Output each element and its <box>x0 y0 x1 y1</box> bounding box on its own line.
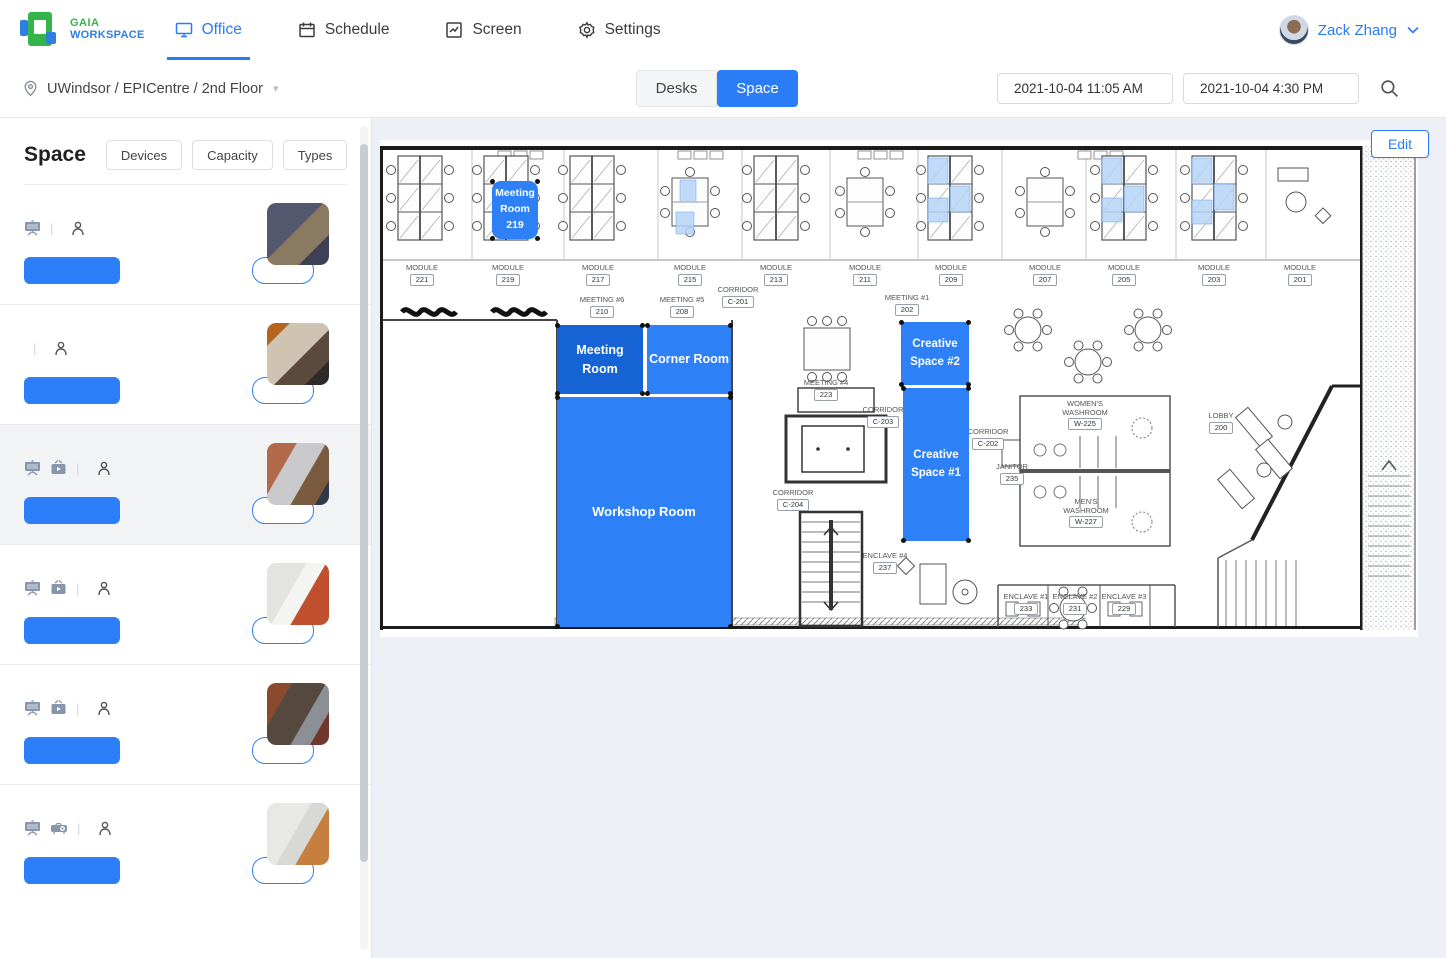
brand-logo: GAIA WORKSPACE <box>0 10 171 50</box>
space-toggle-button[interactable]: Space <box>717 70 798 107</box>
breadcrumb-chevron-icon: ▾ <box>273 82 279 95</box>
gear-icon <box>578 21 596 39</box>
person-icon <box>97 581 111 596</box>
tv-device-icon <box>50 460 67 476</box>
projector-device-icon <box>50 820 68 836</box>
tab-office[interactable]: Office <box>171 0 246 60</box>
main-nav: Office Schedule Screen Settings <box>171 0 713 60</box>
floorplan-canvas[interactable]: MeetingRoom219Meeting RoomCorner RoomWor… <box>380 140 1418 637</box>
breadcrumb[interactable]: UWindsor / EPICentre / 2nd Floor ▾ <box>0 80 279 97</box>
calendar-icon <box>298 21 316 39</box>
start-time-input[interactable]: 2021-10-04 11:05 AM <box>997 73 1173 104</box>
room-card-creative-space-2[interactable]: | <box>0 304 371 424</box>
person-icon <box>98 821 112 836</box>
person-icon <box>71 221 85 236</box>
room-photo <box>267 323 329 385</box>
tab-screen[interactable]: Screen <box>441 0 525 60</box>
screen-device-icon <box>24 460 41 476</box>
person-icon <box>97 581 111 596</box>
desks-toggle-button[interactable]: Desks <box>636 70 717 107</box>
filter-types-button[interactable]: Types <box>283 140 348 170</box>
tab-settings[interactable]: Settings <box>574 0 665 60</box>
time-slot-badge[interactable] <box>24 257 120 284</box>
person-icon <box>97 461 111 476</box>
screen-device-icon <box>24 700 41 716</box>
room-card-meeting-room[interactable]: | <box>0 424 371 544</box>
screen-device-icon <box>24 820 41 836</box>
room-card-workshop-room[interactable]: | <box>0 784 371 904</box>
edit-button[interactable]: Edit <box>1371 130 1429 158</box>
room-overlay-corner-room[interactable]: Corner Room <box>647 325 731 394</box>
room-card-meeting-room-219[interactable]: | <box>0 185 371 304</box>
screen-device-icon <box>24 820 41 836</box>
room-card-creative-space-1[interactable]: | <box>0 664 371 784</box>
person-icon <box>71 221 85 236</box>
end-time-input[interactable]: 2021-10-04 4:30 PM <box>1183 73 1359 104</box>
time-slot-badge[interactable] <box>24 497 120 524</box>
search-button[interactable] <box>1379 78 1400 99</box>
view-toggle: Desks Space <box>636 70 798 107</box>
person-icon <box>97 701 111 716</box>
person-icon <box>54 341 68 356</box>
person-icon <box>54 341 68 356</box>
room-photo <box>267 803 329 865</box>
user-menu[interactable]: Zack Zhang <box>1279 15 1446 45</box>
sidebar-title: Space <box>24 143 86 167</box>
tab-schedule[interactable]: Schedule <box>294 0 394 60</box>
room-photo <box>267 203 329 265</box>
tv-device-icon <box>50 700 67 716</box>
time-slot-badge[interactable] <box>24 377 120 404</box>
monitor-icon <box>175 21 193 39</box>
time-slot-badge[interactable] <box>24 617 120 644</box>
tv-device-icon <box>50 580 67 596</box>
room-overlay-meeting-room-219[interactable]: MeetingRoom219 <box>492 181 538 239</box>
projector-device-icon <box>50 820 68 836</box>
room-photo <box>267 683 329 745</box>
breadcrumb-text: UWindsor / EPICentre / 2nd Floor <box>47 81 263 97</box>
tv-device-icon <box>50 460 67 476</box>
time-slot-badge[interactable] <box>24 857 120 884</box>
tv-device-icon <box>50 700 67 716</box>
floorplan-area: MeetingRoom219Meeting RoomCorner RoomWor… <box>372 118 1446 958</box>
filter-devices-button[interactable]: Devices <box>106 140 182 170</box>
screen-device-icon <box>24 580 41 596</box>
room-overlay-creative-space-2[interactable]: CreativeSpace #2 <box>901 322 969 385</box>
tv-device-icon <box>50 580 67 596</box>
screen-device-icon <box>24 220 41 236</box>
space-sidebar: Space Devices Capacity Types |||||| <box>0 118 372 958</box>
gaia-logo-icon <box>18 10 62 50</box>
screen-device-icon <box>24 460 41 476</box>
user-name: Zack Zhang <box>1318 22 1397 39</box>
time-slot-badge[interactable] <box>24 737 120 764</box>
room-overlay-creative-space-1[interactable]: CreativeSpace #1 <box>903 388 969 541</box>
chart-icon <box>445 21 463 39</box>
room-photo <box>267 443 329 505</box>
filter-capacity-button[interactable]: Capacity <box>192 140 273 170</box>
app-header: GAIA WORKSPACE Office Schedule Screen Se… <box>0 0 1446 60</box>
screen-device-icon <box>24 580 41 596</box>
brand-line2: WORKSPACE <box>70 30 145 42</box>
sidebar-scrollbar[interactable] <box>360 126 368 950</box>
location-pin-icon <box>22 80 39 97</box>
person-icon <box>98 821 112 836</box>
avatar <box>1279 15 1309 45</box>
room-card-corner-room[interactable]: | <box>0 544 371 664</box>
search-icon <box>1379 78 1400 99</box>
room-overlay-meeting-room[interactable]: Meeting Room <box>557 325 643 394</box>
toolbar: UWindsor / EPICentre / 2nd Floor ▾ Desks… <box>0 60 1446 118</box>
room-list: |||||| <box>0 185 371 904</box>
screen-device-icon <box>24 220 41 236</box>
person-icon <box>97 701 111 716</box>
screen-device-icon <box>24 700 41 716</box>
room-photo <box>267 563 329 625</box>
person-icon <box>97 461 111 476</box>
room-overlay-workshop-room[interactable]: Workshop Room <box>557 397 731 627</box>
chevron-down-icon <box>1406 25 1420 35</box>
